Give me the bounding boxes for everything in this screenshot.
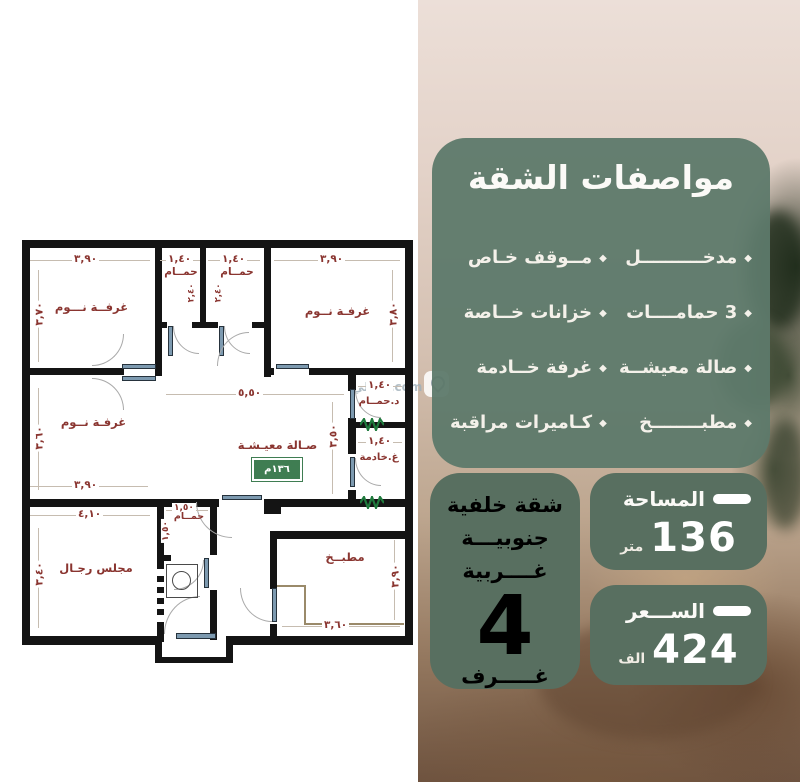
dim-label: ١,٤٠ <box>166 253 193 265</box>
price-unit: الف <box>618 651 645 667</box>
wall <box>264 499 281 514</box>
wall <box>22 636 162 645</box>
wall <box>22 240 413 248</box>
wall <box>270 531 277 589</box>
door-leaf <box>222 495 262 500</box>
dim-label: ٣,٤٠ <box>34 560 46 587</box>
door-leaf <box>204 558 209 588</box>
wall <box>252 322 264 328</box>
floor-plan: ٣,٩٠ ٣,٧٠ ١,٤٠ ٢,٤٠ ١,٤٠ ٢,٤٠ ٣,٩٠ ٣,٨٠ … <box>14 238 418 668</box>
rooms-label: غـــــرف <box>430 664 580 688</box>
dim-label: ٥,٥٠ <box>236 387 263 399</box>
panel-title: مواصفات الشقة <box>432 158 770 197</box>
dim-label: ١,٤٠ <box>220 253 247 265</box>
dim-label: ٢,٤٠ <box>213 282 223 305</box>
wall <box>226 636 233 663</box>
wall <box>264 368 274 375</box>
spec-label: خزانات خــاصة <box>464 302 593 323</box>
wall <box>157 622 164 642</box>
dash-icon <box>713 494 751 504</box>
wall <box>22 368 124 375</box>
dim-label: ٣,٩٠ <box>318 253 345 265</box>
kitchen-counter <box>304 585 306 623</box>
spec-label: مدخــــــــــل <box>625 247 737 268</box>
kitchen-counter <box>277 585 305 587</box>
room-label-kitchen: مطبــخ <box>310 550 380 564</box>
dim-label: ٣,٩٠ <box>72 479 99 491</box>
spec-item-closets: ◆خزانات خــاصة <box>450 302 607 323</box>
spec-label: مطبــــــــخ <box>639 412 737 433</box>
room-label-bedroom-3: غرفـة نــوم <box>46 415 141 429</box>
wall <box>157 555 171 561</box>
door-leaf <box>276 364 309 369</box>
orientation-line: جنوبيـــة <box>430 522 580 555</box>
specs-panel: مواصفات الشقة ◆مدخــــــــــل ◆مــوقف خـ… <box>432 138 770 468</box>
spec-label: غرفة خــادمة <box>476 357 592 378</box>
dim-label: ١,٤٠ <box>366 379 393 391</box>
orientation-card: شقة خلفية جنوبيـــة غــــربية 4 غـــــرف <box>430 473 580 689</box>
room-label-bathroom-2: حمــام <box>214 266 260 278</box>
spec-item-maid-room: ◆غرفة خــادمة <box>450 357 607 378</box>
wall <box>309 368 413 375</box>
spec-label: كـاميرات مراقبة <box>450 412 592 433</box>
dim-label: ٤,١٠ <box>76 508 103 520</box>
window-symbol <box>360 418 384 431</box>
room-label-bedroom-1: غرفــة نـــوم <box>44 300 139 314</box>
dim-label: ٣,٩٠ <box>390 562 402 589</box>
spec-label: مــوقف خـاص <box>468 247 592 268</box>
diamond-bullet-icon: ◆ <box>744 308 752 319</box>
dim-label: ٣,٥٠ <box>328 422 340 449</box>
door-leaf <box>122 376 156 381</box>
washing-machine-icon <box>166 564 198 598</box>
dim-label: ١,٥٠ <box>161 519 171 543</box>
wall <box>22 240 30 645</box>
door-arc <box>164 596 200 634</box>
wall <box>270 531 413 539</box>
area-badge: ١٣٦م <box>252 458 302 481</box>
wall <box>155 322 167 328</box>
area-value: 136 <box>650 515 737 561</box>
door-arc <box>92 334 124 366</box>
wall <box>405 240 413 645</box>
door-arc <box>92 378 124 410</box>
wall <box>206 322 218 328</box>
diamond-bullet-icon: ◆ <box>744 253 752 264</box>
price-card: الســـعر 424 الف <box>590 585 767 685</box>
spec-item-living: ◆صالة معيشــة <box>607 357 752 378</box>
spec-label: 3 حمامــــات <box>626 302 737 323</box>
wall <box>264 499 412 507</box>
spec-item-kitchen: ◆مطبــــــــخ <box>607 412 752 433</box>
dim-label: ١,٤٠ <box>366 435 393 447</box>
diamond-bullet-icon: ◆ <box>599 418 607 429</box>
spec-item-entrance: ◆مدخــــــــــل <box>607 247 752 268</box>
dim-label: ٢,٤٠ <box>186 282 196 305</box>
door-leaf <box>122 364 156 369</box>
dim-label: ٣,٩٠ <box>72 253 99 265</box>
door-arc <box>240 588 272 622</box>
wall <box>155 657 233 663</box>
spec-item-bathrooms: ◆3 حمامــــات <box>607 302 752 323</box>
wall <box>348 418 356 454</box>
price-label: الســـعر <box>626 599 705 623</box>
dim-label: ٣,٦٠ <box>322 619 349 631</box>
room-label-bathroom-right: د.حمــام <box>356 396 402 407</box>
wall <box>226 636 413 645</box>
room-label-living-hall: صـالة معيـشـة <box>230 438 325 452</box>
dim-label: ٣,٨٠ <box>388 300 400 327</box>
sliding-wall <box>157 576 164 616</box>
spec-item-parking: ◆مــوقف خـاص <box>450 247 607 268</box>
diamond-bullet-icon: ◆ <box>599 308 607 319</box>
kitchen-counter <box>304 623 404 625</box>
diamond-bullet-icon: ◆ <box>744 363 752 374</box>
door-leaf <box>168 326 173 356</box>
area-label: المساحة <box>623 487 705 511</box>
rooms-count: 4 <box>430 590 580 664</box>
spec-label: صالة معيشــة <box>619 357 737 378</box>
orientation-line: شقة خلفية <box>430 489 580 522</box>
room-label-bedroom-2: غرفـة نــوم <box>290 304 385 318</box>
diamond-bullet-icon: ◆ <box>744 418 752 429</box>
price-value: 424 <box>652 627 739 673</box>
diamond-bullet-icon: ◆ <box>599 363 607 374</box>
specs-list: ◆مدخــــــــــل ◆مــوقف خـاص ◆3 حمامــــ… <box>450 230 752 450</box>
spec-item-cameras: ◆كـاميرات مراقبة <box>450 412 607 433</box>
wall <box>200 240 206 328</box>
room-label-bathroom-bottom: حمــام <box>170 511 208 522</box>
room-label-maid-room: غ.خادمة <box>356 452 402 463</box>
dash-icon <box>713 606 751 616</box>
room-label-majlis: مجلس رجـال <box>46 561 146 575</box>
door-leaf <box>272 588 277 622</box>
window-symbol <box>360 496 384 509</box>
area-card: المساحة 136 متر <box>590 473 767 570</box>
area-unit: متر <box>620 539 643 555</box>
dim-label: ٣,٦٠ <box>34 424 46 451</box>
door-arc <box>173 326 199 354</box>
diamond-bullet-icon: ◆ <box>599 253 607 264</box>
listing-infographic: عقالي.com مواصفات الشقة ◆مدخــــــــــل … <box>0 0 800 782</box>
wall <box>264 240 271 377</box>
room-label-bathroom-1: حمــام <box>162 266 200 278</box>
wall <box>270 624 277 638</box>
